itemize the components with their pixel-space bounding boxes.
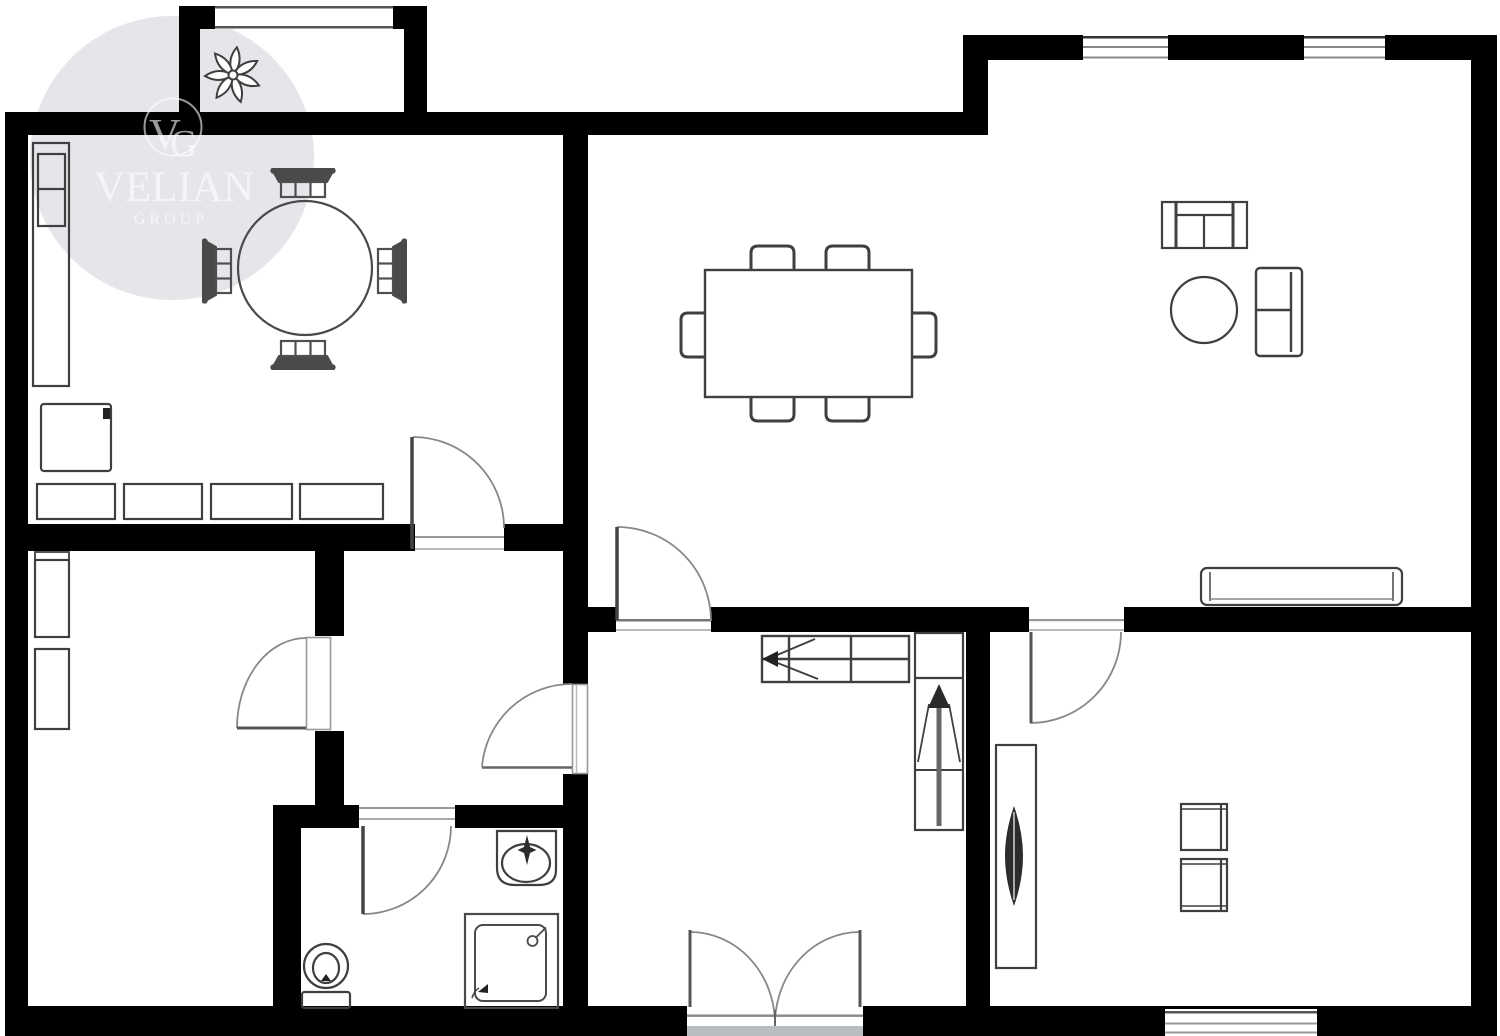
svg-text:G: G [170,123,197,165]
svg-text:GROUP: GROUP [134,211,208,228]
svg-text:VELIAN: VELIAN [94,164,254,211]
